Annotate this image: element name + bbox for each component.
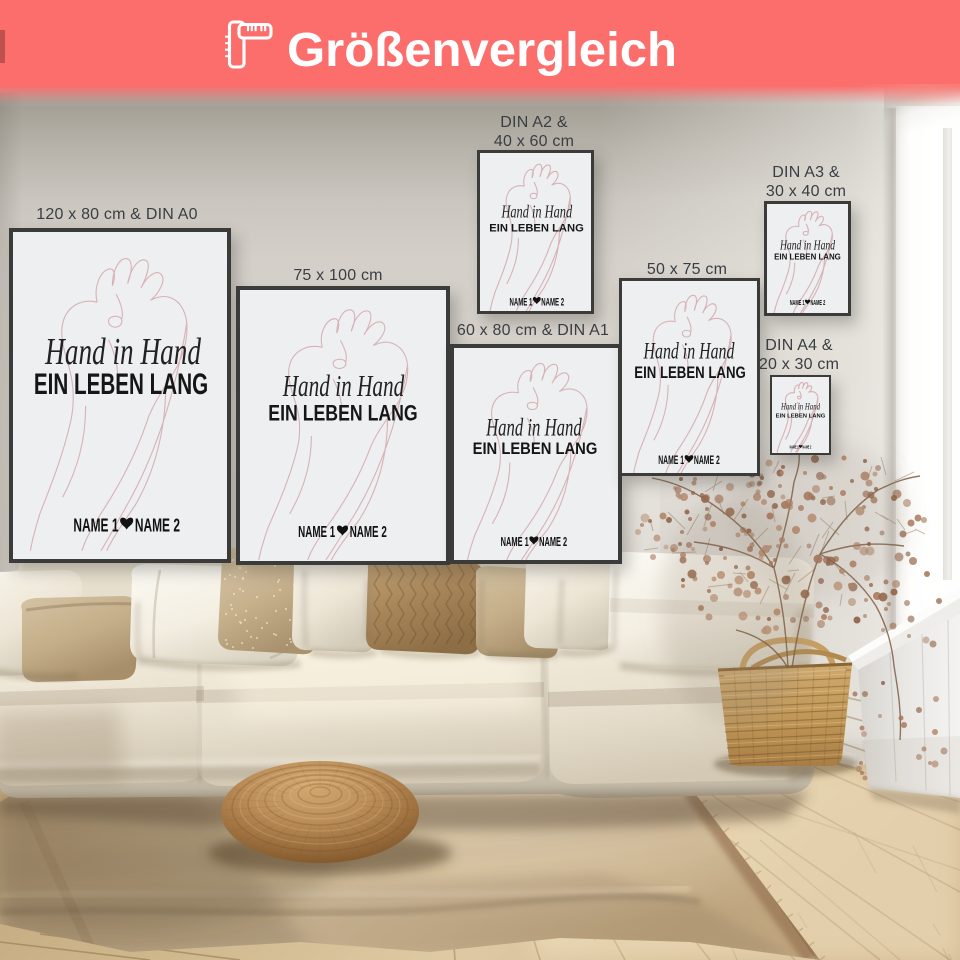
svg-text:EIN LEBEN LANG: EIN LEBEN LANG	[34, 368, 208, 401]
svg-text:NAME 2: NAME 2	[802, 445, 811, 451]
svg-text:NAME 2: NAME 2	[541, 296, 564, 308]
svg-text:Hand in Hand: Hand in Hand	[501, 201, 572, 221]
svg-text:Hand in Hand: Hand in Hand	[643, 338, 735, 363]
svg-text:EIN LEBEN LANG: EIN LEBEN LANG	[634, 364, 745, 382]
svg-text:Größenvergleich: Größenvergleich	[287, 24, 677, 77]
svg-text:NAME 1: NAME 1	[73, 514, 118, 535]
svg-text:NAME 2: NAME 2	[350, 524, 387, 541]
svg-text:NAME 2: NAME 2	[539, 534, 567, 549]
svg-text:NAME 1: NAME 1	[658, 453, 684, 467]
svg-text:EIN LEBEN LANG: EIN LEBEN LANG	[774, 253, 841, 262]
svg-text:Hand in Hand: Hand in Hand	[780, 403, 820, 413]
svg-text:NAME 1: NAME 1	[298, 524, 335, 541]
svg-text:Hand in Hand: Hand in Hand	[485, 414, 582, 441]
svg-text:NAME 2: NAME 2	[135, 514, 180, 535]
svg-text:NAME 1: NAME 1	[790, 298, 805, 307]
svg-text:NAME 2: NAME 2	[694, 453, 720, 467]
svg-text:NAME 1: NAME 1	[790, 445, 799, 451]
svg-text:NAME 1: NAME 1	[509, 296, 532, 308]
svg-text:NAME 2: NAME 2	[810, 298, 825, 307]
svg-text:EIN LEBEN LANG: EIN LEBEN LANG	[473, 439, 598, 458]
svg-text:Hand in Hand: Hand in Hand	[779, 238, 835, 253]
svg-text:Hand in Hand: Hand in Hand	[44, 331, 201, 373]
svg-text:NAME 1: NAME 1	[501, 534, 529, 549]
svg-text:EIN LEBEN LANG: EIN LEBEN LANG	[776, 413, 826, 419]
svg-text:Hand in Hand: Hand in Hand	[282, 368, 405, 403]
svg-text:EIN LEBEN LANG: EIN LEBEN LANG	[268, 400, 417, 425]
svg-text:EIN LEBEN LANG: EIN LEBEN LANG	[489, 222, 584, 234]
